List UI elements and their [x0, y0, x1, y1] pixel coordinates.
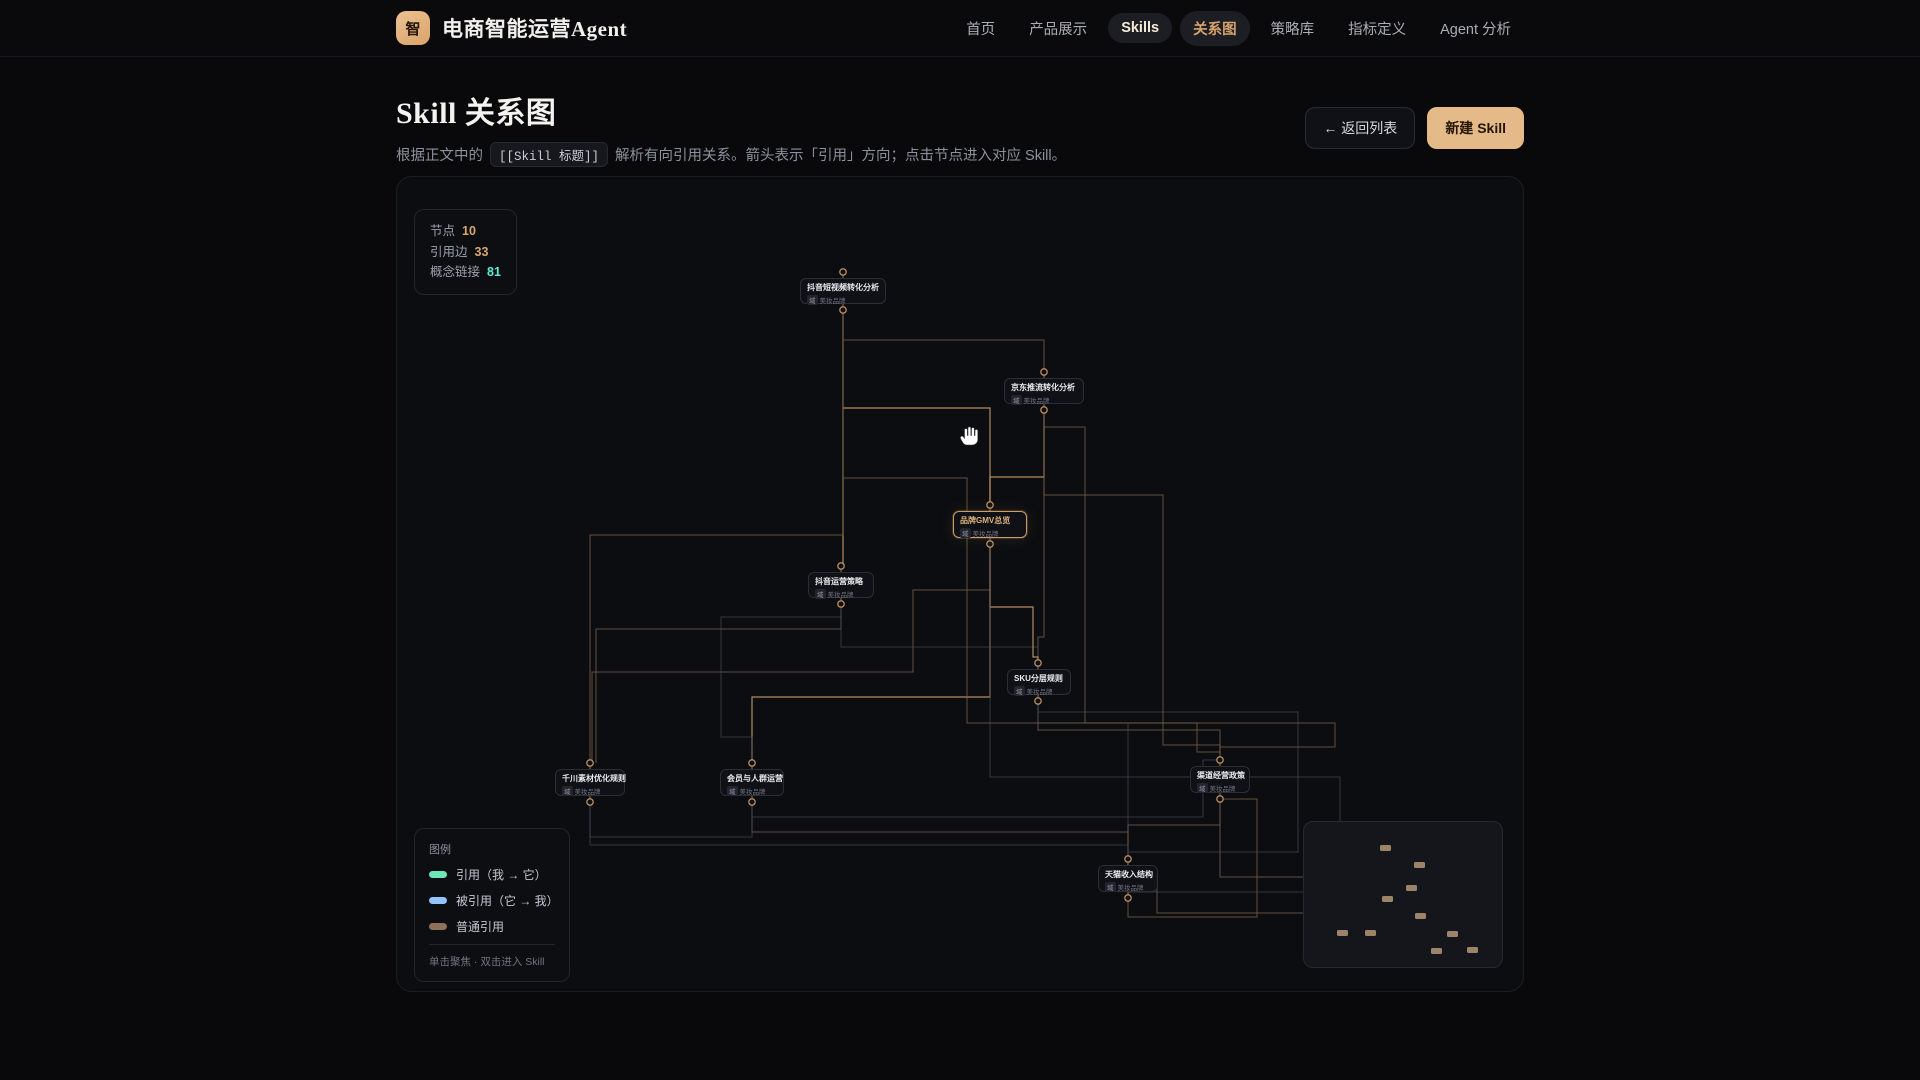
skill-title-code-chip: [[Skill 标题]]: [490, 142, 608, 167]
node-title: 品牌GMV总览: [960, 516, 1020, 526]
nav-links: 首页 产品展示 Skills 关系图 策略库 指标定义 Agent 分析: [953, 11, 1524, 46]
node-port-icon: [1217, 757, 1223, 763]
graph-edge: [752, 802, 1128, 859]
node-port-icon: [987, 541, 993, 547]
graph-node-n1[interactable]: 抖音短视频转化分析域美妆品牌: [800, 278, 886, 304]
node-subtitle: 域美妆品牌: [807, 295, 879, 305]
node-subtitle: 域美妆品牌: [1105, 882, 1151, 892]
minimap-node: [1467, 947, 1478, 953]
legend-item: 引用（我 → 它）: [429, 866, 555, 883]
header-actions: ← 返回列表 新建 Skill: [1305, 107, 1524, 149]
graph-node-n5[interactable]: SKU分层规则域美妆品牌: [1007, 669, 1071, 695]
node-port-icon: [1125, 856, 1131, 862]
node-title: SKU分层规则: [1014, 674, 1064, 684]
brand[interactable]: 智 电商智能运营Agent: [396, 11, 627, 45]
graph-stats-box: 节点10引用边33概念链接81: [414, 209, 517, 295]
legend-item: 被引用（它 → 我）: [429, 892, 555, 909]
graph-node-n4[interactable]: 抖音运营策略域美妆品牌: [808, 572, 874, 598]
minimap-node: [1406, 885, 1417, 891]
legend-item: 普通引用: [429, 918, 555, 935]
node-port-icon: [749, 799, 755, 805]
subtitle-prefix: 根据正文中的: [396, 144, 483, 165]
minimap-node: [1365, 930, 1376, 936]
brand-logo-icon: 智: [396, 11, 430, 45]
page-title: Skill 关系图: [396, 88, 1066, 132]
node-title: 天猫收入结构: [1105, 870, 1151, 880]
node-title: 抖音短视频转化分析: [807, 283, 879, 293]
graph-edge: [1038, 701, 1128, 859]
node-port-icon: [1035, 698, 1041, 704]
node-port-icon: [987, 502, 993, 508]
node-port-icon: [1041, 369, 1047, 375]
node-subtitle: 域美妆品牌: [1011, 395, 1077, 405]
stat-row: 节点10: [430, 221, 501, 242]
legend-title: 图例: [429, 841, 555, 857]
graph-node-n7[interactable]: 会员与人群运营域美妆品牌: [720, 769, 784, 796]
graph-node-n9[interactable]: 天猫收入结构域美妆品牌: [1098, 865, 1158, 892]
node-title: 渠道经营政策: [1197, 771, 1243, 781]
graph-legend: 图例 引用（我 → 它）被引用（它 → 我）普通引用 单击聚焦 · 双击进入 S…: [414, 828, 570, 982]
minimap-node: [1337, 930, 1348, 936]
nav-item-metrics[interactable]: 指标定义: [1335, 11, 1419, 46]
node-subtitle: 域美妆品牌: [960, 528, 1020, 538]
graph-edge: [990, 544, 1038, 663]
legend-hint: 单击聚焦 · 双击进入 Skill: [429, 944, 555, 969]
graph-edge: [1038, 701, 1298, 859]
node-port-icon: [838, 601, 844, 607]
nav-item-home[interactable]: 首页: [953, 11, 1008, 46]
node-title: 抖音运营策略: [815, 577, 867, 587]
graph-node-n8[interactable]: 渠道经营政策域美妆品牌: [1190, 766, 1250, 793]
graph-panel[interactable]: 抖音短视频转化分析域美妆品牌京东推流转化分析域美妆品牌品牌GMV总览域美妆品牌抖…: [396, 176, 1524, 992]
node-title: 会员与人群运营: [727, 774, 777, 784]
node-subtitle: 域美妆品牌: [562, 786, 618, 796]
subtitle-suffix: 解析有向引用关系。箭头表示「引用」方向；点击节点进入对应 Skill。: [615, 144, 1066, 165]
graph-edge: [1044, 410, 1220, 760]
graph-edge: [1044, 410, 1335, 760]
minimap-node: [1380, 845, 1391, 851]
node-port-icon: [840, 307, 846, 313]
page-root: 智 电商智能运营Agent 首页 产品展示 Skills 关系图 策略库 指标定…: [0, 0, 1920, 1080]
node-port-icon: [1217, 796, 1223, 802]
graph-edge: [843, 408, 990, 505]
node-port-icon: [1035, 660, 1041, 666]
brand-title: 电商智能运营Agent: [442, 13, 627, 43]
graph-edge: [1038, 410, 1044, 663]
node-port-icon: [840, 269, 846, 275]
graph-node-n3[interactable]: 品牌GMV总览域美妆品牌: [953, 511, 1027, 538]
node-port-icon: [587, 760, 593, 766]
page-header: Skill 关系图 根据正文中的 [[Skill 标题]] 解析有向引用关系。箭…: [396, 88, 1524, 167]
nav-item-agent[interactable]: Agent 分析: [1427, 11, 1524, 46]
graph-edge: [590, 802, 752, 837]
nav-item-products[interactable]: 产品展示: [1016, 11, 1100, 46]
minimap-node: [1447, 931, 1458, 937]
graph-minimap[interactable]: [1303, 821, 1503, 968]
node-port-icon: [838, 563, 844, 569]
minimap-node: [1414, 862, 1425, 868]
graph-node-n2[interactable]: 京东推流转化分析域美妆品牌: [1004, 378, 1084, 404]
node-port-icon: [1125, 895, 1131, 901]
minimap-node: [1382, 896, 1393, 902]
nav-item-strategy[interactable]: 策略库: [1258, 11, 1328, 46]
graph-edge: [592, 544, 990, 763]
stat-row: 引用边33: [430, 242, 501, 263]
minimap-node: [1415, 913, 1426, 919]
graph-edge: [721, 604, 841, 763]
graph-edge: [590, 802, 1128, 859]
new-skill-button[interactable]: 新建 Skill: [1427, 107, 1524, 149]
graph-edge: [841, 604, 1038, 663]
graph-edge: [990, 410, 1044, 505]
stat-row: 概念链接81: [430, 262, 501, 283]
nav-item-skills[interactable]: Skills: [1108, 13, 1172, 43]
node-subtitle: 域美妆品牌: [1197, 783, 1243, 793]
minimap-node: [1431, 948, 1442, 954]
node-subtitle: 域美妆品牌: [815, 589, 867, 599]
page-subtitle: 根据正文中的 [[Skill 标题]] 解析有向引用关系。箭头表示「引用」方向；…: [396, 142, 1066, 167]
nav-item-graph[interactable]: 关系图: [1180, 11, 1250, 46]
graph-node-n6[interactable]: 千川素材优化规则域美妆品牌: [555, 769, 625, 796]
node-port-icon: [749, 760, 755, 766]
legend-swatch-icon: [429, 871, 447, 878]
node-port-icon: [587, 799, 593, 805]
graph-edge: [1128, 799, 1313, 913]
graph-edge: [596, 604, 841, 763]
graph-edge: [590, 310, 843, 763]
node-subtitle: 域美妆品牌: [727, 786, 777, 796]
node-port-icon: [1041, 407, 1047, 413]
graph-edge: [752, 760, 1220, 817]
node-subtitle: 域美妆品牌: [1014, 686, 1064, 696]
navbar: 智 电商智能运营Agent 首页 产品展示 Skills 关系图 策略库 指标定…: [0, 0, 1920, 57]
back-to-list-button[interactable]: ← 返回列表: [1305, 107, 1415, 149]
graph-edge: [1038, 701, 1220, 760]
node-title: 千川素材优化规则: [562, 774, 618, 784]
graph-edge: [843, 310, 1044, 372]
graph-edge: [1128, 799, 1220, 859]
legend-swatch-icon: [429, 923, 447, 930]
node-title: 京东推流转化分析: [1011, 383, 1077, 393]
legend-swatch-icon: [429, 897, 447, 904]
